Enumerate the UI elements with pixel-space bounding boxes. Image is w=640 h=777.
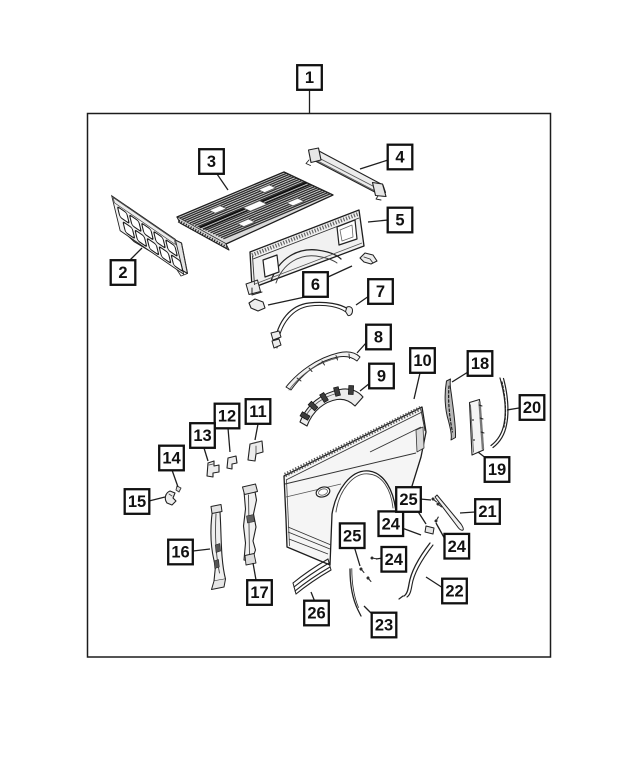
svg-text:24: 24 [385, 551, 404, 569]
svg-text:20: 20 [523, 399, 541, 417]
svg-text:6: 6 [311, 276, 320, 294]
svg-text:9: 9 [377, 368, 386, 386]
svg-text:8: 8 [374, 329, 383, 347]
svg-text:2: 2 [118, 264, 127, 282]
svg-text:19: 19 [488, 461, 506, 479]
svg-text:25: 25 [343, 527, 361, 545]
svg-text:17: 17 [250, 584, 268, 602]
svg-text:26: 26 [307, 605, 325, 623]
svg-text:3: 3 [207, 153, 216, 171]
svg-text:18: 18 [471, 355, 489, 373]
svg-text:11: 11 [249, 403, 266, 421]
svg-text:24: 24 [448, 538, 467, 556]
svg-text:21: 21 [478, 503, 496, 521]
svg-text:22: 22 [445, 583, 463, 601]
svg-text:13: 13 [193, 427, 211, 445]
svg-text:12: 12 [218, 408, 236, 426]
svg-text:23: 23 [375, 617, 393, 635]
svg-text:16: 16 [171, 544, 189, 562]
svg-text:14: 14 [162, 450, 181, 468]
svg-text:25: 25 [399, 491, 417, 509]
svg-text:4: 4 [395, 149, 405, 167]
svg-text:10: 10 [413, 352, 431, 370]
svg-text:1: 1 [305, 69, 314, 87]
svg-text:7: 7 [376, 283, 385, 301]
svg-text:15: 15 [128, 493, 146, 511]
svg-text:5: 5 [395, 212, 404, 230]
svg-text:24: 24 [382, 515, 401, 533]
